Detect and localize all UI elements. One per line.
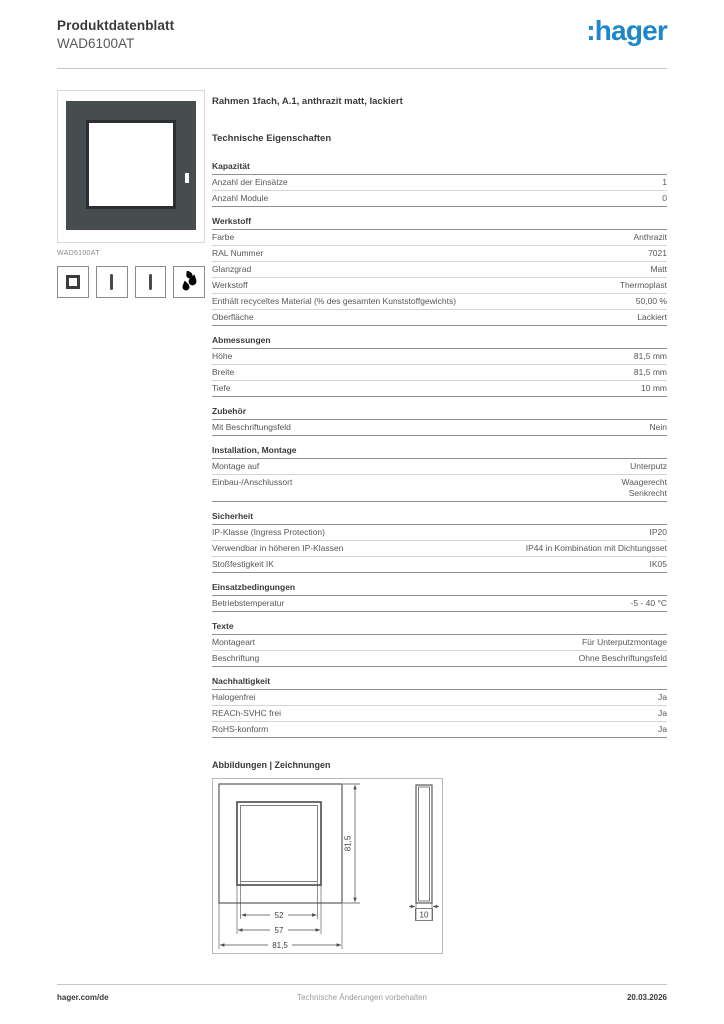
frame-icon — [57, 266, 89, 298]
dim-mid-width: 57 — [275, 926, 284, 935]
spec-value: Anthrazit — [633, 232, 667, 243]
spec-value: 1 — [662, 177, 667, 188]
spec-row: Mit Beschriftungsfeld Nein — [212, 420, 667, 436]
inner-width-dimension: 52 — [242, 910, 317, 921]
side-view — [416, 785, 432, 903]
section-title: Texte — [212, 619, 667, 635]
dim-depth: 10 — [420, 911, 429, 920]
spec-section: Texte Montageart Für Unterputzmontage Be… — [212, 619, 667, 667]
paint-drops-icon — [173, 266, 205, 298]
spec-value: Für Unterputzmontage — [582, 637, 667, 648]
product-image-caption: WAD6100AT — [57, 250, 205, 257]
vertical-module-icon — [96, 266, 128, 298]
hager-logo: :hager — [586, 18, 667, 44]
spec-row: Anzahl der Einsätze 1 — [212, 175, 667, 191]
dim-inner-width: 52 — [275, 911, 284, 920]
spec-section: Einsatzbedingungen Betriebstemperatur -5… — [212, 580, 667, 612]
mid-width-dimension: 57 — [238, 925, 320, 936]
spec-value: Nein — [650, 422, 667, 433]
spec-section: Kapazität Anzahl der Einsätze 1 Anzahl M… — [212, 159, 667, 207]
spec-label: Glanzgrad — [212, 264, 251, 275]
spec-label: Farbe — [212, 232, 234, 243]
section-title: Kapazität — [212, 159, 667, 175]
spec-row: Montageart Für Unterputzmontage — [212, 635, 667, 651]
spec-value: Waagerecht Senkrecht — [621, 477, 667, 499]
spec-value: 10 mm — [641, 383, 667, 394]
spec-label: Montage auf — [212, 461, 259, 472]
spec-label: Verwendbar in höheren IP-Klassen — [212, 543, 343, 554]
spec-row: Höhe 81,5 mm — [212, 349, 667, 365]
section-title: Einsatzbedingungen — [212, 580, 667, 596]
header-titles: Produktdatenblatt WAD6100AT — [57, 18, 174, 51]
spec-row: Tiefe 10 mm — [212, 381, 667, 397]
spec-value: 0 — [662, 193, 667, 204]
spec-value: Ja — [658, 708, 667, 719]
spec-value: -5 - 40 °C — [631, 598, 667, 609]
spec-row: RAL Nummer 7021 — [212, 246, 667, 262]
frame-outer-shape — [66, 101, 196, 230]
frame-inner-shape — [86, 120, 176, 209]
spec-label: IP-Klasse (Ingress Protection) — [212, 527, 325, 538]
spec-row: Montage auf Unterputz — [212, 459, 667, 475]
product-datasheet-page: Produktdatenblatt WAD6100AT :hager WAD61… — [0, 0, 724, 1024]
spec-row: REACh-SVHC frei Ja — [212, 706, 667, 722]
spec-section: Installation, Montage Montage auf Unterp… — [212, 443, 667, 502]
spec-row: Betriebstemperatur -5 - 40 °C — [212, 596, 667, 612]
spec-value: IP20 — [650, 527, 668, 538]
footer-website-link[interactable]: hager.com/de — [57, 993, 109, 1002]
spec-value: Lackiert — [637, 312, 667, 323]
spec-value: Ja — [658, 692, 667, 703]
spec-value: Unterputz — [630, 461, 667, 472]
spec-label: Tiefe — [212, 383, 231, 394]
vertical-module-icon — [135, 266, 167, 298]
spec-row: Farbe Anthrazit — [212, 230, 667, 246]
spec-label: RAL Nummer — [212, 248, 263, 259]
spec-label: Höhe — [212, 351, 232, 362]
spec-section: Nachhaltigkeit Halogenfrei Ja REACh-SVHC… — [212, 674, 667, 738]
spec-label: Anzahl Module — [212, 193, 268, 204]
footer-divider — [57, 984, 667, 985]
product-code: WAD6100AT — [57, 36, 174, 51]
spec-row: Beschriftung Ohne Beschriftungsfeld — [212, 651, 667, 667]
spec-row: Enthält recyceltes Material (% des gesam… — [212, 294, 667, 310]
height-dimension: 81,5 — [343, 784, 360, 903]
feature-icons — [57, 266, 205, 298]
spec-row: Verwendbar in höheren IP-Klassen IP44 in… — [212, 541, 667, 557]
section-title: Nachhaltigkeit — [212, 674, 667, 690]
spec-label: Betriebstemperatur — [212, 598, 284, 609]
spec-section: Werkstoff Farbe Anthrazit RAL Nummer 702… — [212, 214, 667, 326]
header-divider — [57, 68, 667, 69]
section-title: Installation, Montage — [212, 443, 667, 459]
footer-disclaimer: Technische Änderungen vorbehalten — [297, 993, 427, 1002]
spec-label: Beschriftung — [212, 653, 259, 664]
product-media-column: WAD6100AT — [57, 90, 205, 298]
spec-row: IP-Klasse (Ingress Protection) IP20 — [212, 525, 667, 541]
spec-value: Matt — [650, 264, 667, 275]
spec-row: Anzahl Module 0 — [212, 191, 667, 207]
spec-label: Halogenfrei — [212, 692, 255, 703]
technical-drawing: 81,5 52 — [212, 778, 443, 954]
spec-value: Ja — [658, 724, 667, 735]
product-title: Rahmen 1fach, A.1, anthrazit matt, lacki… — [212, 96, 667, 107]
section-title: Abmessungen — [212, 333, 667, 349]
spec-value: IP44 in Kombination mit Dichtungsset — [526, 543, 667, 554]
spec-label: Werkstoff — [212, 280, 248, 291]
spec-label: Breite — [212, 367, 234, 378]
spec-value: IK05 — [650, 559, 668, 570]
spec-value: 81,5 mm — [634, 367, 667, 378]
spec-row: Einbau-/Anschlussort Waagerecht Senkrech… — [212, 475, 667, 502]
spec-value: 81,5 mm — [634, 351, 667, 362]
spec-row: Glanzgrad Matt — [212, 262, 667, 278]
section-title: Zubehör — [212, 404, 667, 420]
spec-label: REACh-SVHC frei — [212, 708, 281, 719]
spec-label: Stoßfestigkeit IK — [212, 559, 274, 570]
drawings-heading: Abbildungen | Zeichnungen — [212, 760, 667, 770]
dim-front-height: 81,5 — [344, 835, 353, 851]
spec-section: Zubehör Mit Beschriftungsfeld Nein — [212, 404, 667, 436]
spec-section: Abmessungen Höhe 81,5 mm Breite 81,5 mm … — [212, 333, 667, 397]
tech-properties-heading: Technische Eigenschaften — [212, 133, 667, 144]
spec-row: Oberfläche Lackiert — [212, 310, 667, 326]
spec-label: RoHS-konform — [212, 724, 268, 735]
spec-label: Oberfläche — [212, 312, 254, 323]
doc-type-title: Produktdatenblatt — [57, 18, 174, 33]
front-view — [219, 784, 342, 903]
product-image — [57, 90, 205, 243]
spec-row: Stoßfestigkeit IK IK05 — [212, 557, 667, 573]
outer-width-dimension: 81,5 — [220, 940, 341, 951]
depth-dimension: 10 — [409, 903, 439, 921]
spec-label: Einbau-/Anschlussort — [212, 477, 292, 488]
spec-value: Thermoplast — [620, 280, 667, 291]
footer-date: 20.03.2026 — [627, 993, 667, 1002]
spec-label: Mit Beschriftungsfeld — [212, 422, 291, 433]
spec-column: Rahmen 1fach, A.1, anthrazit matt, lacki… — [212, 90, 667, 954]
spec-row: RoHS-konform Ja — [212, 722, 667, 738]
dim-outer-width: 81,5 — [272, 941, 288, 950]
header: Produktdatenblatt WAD6100AT :hager — [57, 18, 667, 51]
spec-value: 50,00 % — [636, 296, 667, 307]
spec-label: Enthält recyceltes Material (% des gesam… — [212, 296, 456, 307]
spec-value: 7021 — [648, 248, 667, 259]
spec-value: Ohne Beschriftungsfeld — [579, 653, 667, 664]
spec-row: Halogenfrei Ja — [212, 690, 667, 706]
spec-row: Breite 81,5 mm — [212, 365, 667, 381]
spec-row: Werkstoff Thermoplast — [212, 278, 667, 294]
spec-label: Anzahl der Einsätze — [212, 177, 288, 188]
spec-sections: Kapazität Anzahl der Einsätze 1 Anzahl M… — [212, 159, 667, 738]
spec-section: Sicherheit IP-Klasse (Ingress Protection… — [212, 509, 667, 573]
section-title: Sicherheit — [212, 509, 667, 525]
section-title: Werkstoff — [212, 214, 667, 230]
spec-label: Montageart — [212, 637, 255, 648]
